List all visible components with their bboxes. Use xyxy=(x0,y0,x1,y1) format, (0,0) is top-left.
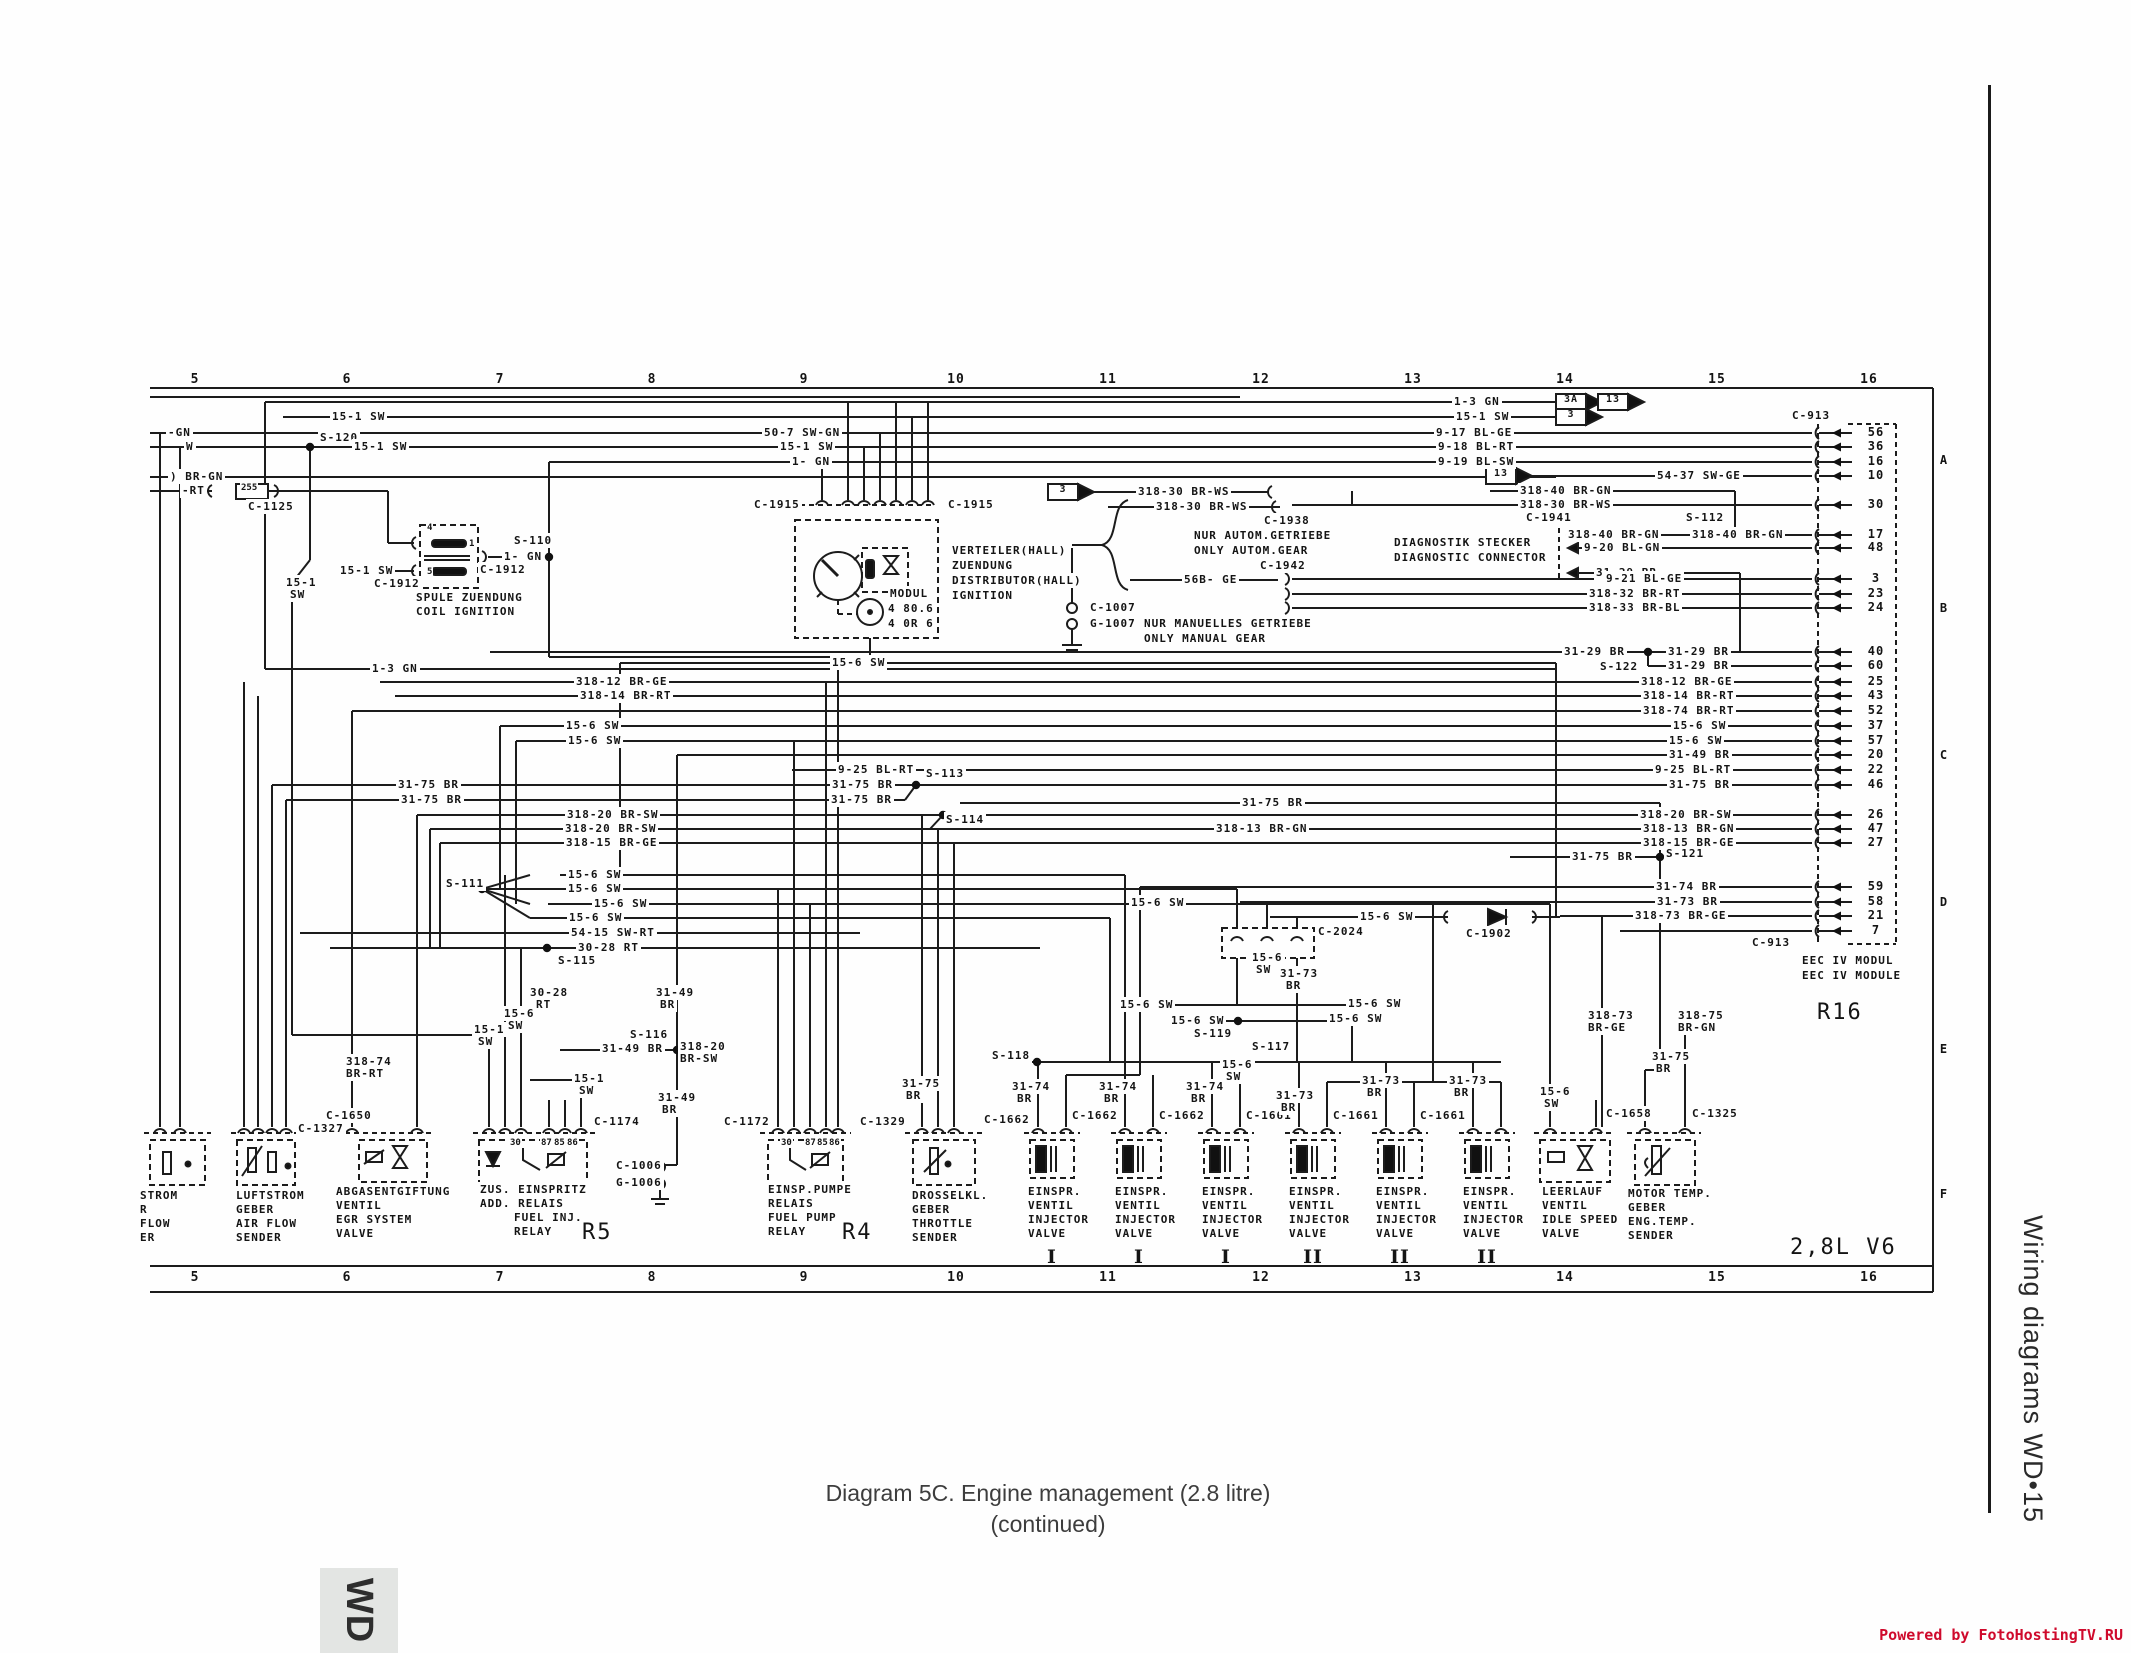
wire-label: VENTIL xyxy=(1026,1198,1076,1213)
wire-label: 31-75 BR xyxy=(829,792,894,807)
pin-number: 37 xyxy=(1866,718,1886,733)
page-divider-rule xyxy=(1988,85,1991,1513)
wire-label: C-1902 xyxy=(1464,926,1514,941)
wire-label: C-1125 xyxy=(246,499,296,514)
wire-label: FUEL PUMP xyxy=(766,1210,839,1225)
terminal-number: 1 xyxy=(468,539,475,549)
wire-label: EINSPR. xyxy=(1374,1184,1431,1199)
grid-number: 11 xyxy=(1097,1270,1119,1285)
wire-label: INJECTOR xyxy=(1113,1212,1178,1227)
wire-label: C-1172 xyxy=(722,1114,772,1129)
wire-label: BR xyxy=(1452,1085,1471,1100)
wire-label: C-2024 xyxy=(1316,924,1366,939)
wire-label: 15-6 SW xyxy=(1327,1011,1384,1026)
wire-label: EINSPR. xyxy=(1200,1184,1257,1199)
wire-label: C-1915 xyxy=(752,497,802,512)
arrow-ref: 3 xyxy=(1565,409,1576,420)
wire-label: VALVE xyxy=(334,1226,376,1241)
wire-label: -RT xyxy=(180,483,207,498)
wire-label: 4 0R 6 xyxy=(886,616,936,631)
wire-label: VALVE xyxy=(1113,1226,1155,1241)
wire-label: 15-6 SW xyxy=(1118,997,1175,1012)
pin-number: 22 xyxy=(1866,762,1886,777)
wire-label: LUFTSTROM xyxy=(234,1188,307,1203)
terminal-number: 4 xyxy=(426,523,433,533)
wire-label: 31-74 BR xyxy=(1654,879,1719,894)
pin-number: 43 xyxy=(1866,688,1886,703)
wire-label: ZUS. EINSPRITZ xyxy=(478,1182,589,1197)
wire-label: DIAGNOSTIK STECKER xyxy=(1392,535,1533,550)
grid-number: 10 xyxy=(945,372,967,387)
wire-label: 31-75 BR xyxy=(396,777,461,792)
wire-label: ZUENDUNG xyxy=(950,558,1015,573)
wire-label: SW xyxy=(1254,962,1273,977)
row-letter: C xyxy=(1938,748,1950,763)
terminal-number: 30 xyxy=(780,1138,793,1148)
wire-label: C-1942 xyxy=(1258,558,1308,573)
row-letter: F xyxy=(1938,1187,1950,1202)
wire-label: FUEL INJ. xyxy=(512,1210,585,1225)
wire-label: BR xyxy=(660,1102,679,1117)
wire-label: VENTIL xyxy=(334,1198,384,1213)
wire-label: 54-37 SW-GE xyxy=(1655,468,1743,483)
arrow-ref: 13 xyxy=(1492,468,1510,479)
wire-label: BR xyxy=(1189,1091,1208,1106)
wire-label: S-119 xyxy=(1192,1026,1234,1041)
wire-label: VALVE xyxy=(1540,1226,1582,1241)
wire-label: 15-1 SW xyxy=(1454,409,1511,424)
wire-label: ) BR-GN xyxy=(168,469,225,484)
component-id: R5 xyxy=(580,1220,615,1245)
wire-label: NUR MANUELLES GETRIEBE xyxy=(1142,616,1314,631)
wire-label: W xyxy=(184,439,196,454)
wire-label: INJECTOR xyxy=(1374,1212,1439,1227)
grid-number: 14 xyxy=(1554,1270,1576,1285)
wire-label: BR xyxy=(1015,1091,1034,1106)
wire-label: SENDER xyxy=(1626,1228,1676,1243)
wire-label: C-1661 xyxy=(1331,1108,1381,1123)
terminal-number: 86 xyxy=(566,1138,579,1148)
wire-label: SW xyxy=(577,1083,596,1098)
wire-label: BR-SW xyxy=(678,1051,720,1066)
wire-label: 15-6 SW xyxy=(566,881,623,896)
wire-label: SPULE ZUENDUNG xyxy=(414,590,525,605)
wire-label: 15-6 SW xyxy=(1129,895,1186,910)
component-id: 2,8L V6 xyxy=(1788,1235,1899,1260)
wire-label: 318-20 BR-SW xyxy=(563,821,658,836)
row-letter: A xyxy=(1938,453,1950,468)
wire-label: 31-49 BR xyxy=(600,1041,665,1056)
pin-number: 7 xyxy=(1870,923,1882,938)
wire-label: 318-74 BR-RT xyxy=(1641,703,1736,718)
cylinder-numeral: II xyxy=(1388,1246,1412,1268)
wire-label: C-1325 xyxy=(1690,1106,1740,1121)
wire-label: VALVE xyxy=(1461,1226,1503,1241)
wire-label: BR xyxy=(1284,978,1303,993)
wire-label: 318-40 BR-GN xyxy=(1690,527,1785,542)
wire-label: SENDER xyxy=(910,1230,960,1245)
cylinder-numeral: I xyxy=(1219,1246,1233,1268)
wire-label: DROSSELKL. xyxy=(910,1188,990,1203)
wire-label: COIL IGNITION xyxy=(414,604,517,619)
wire-label: S-118 xyxy=(990,1048,1032,1063)
wire-label: RELAIS xyxy=(766,1196,816,1211)
grid-number: 8 xyxy=(646,1270,659,1285)
wire-label: 9-20 BL-GN xyxy=(1582,540,1662,555)
wire-label: EINSPR. xyxy=(1287,1184,1344,1199)
pin-number: 25 xyxy=(1866,674,1886,689)
wire-label: 15-6 SW xyxy=(1667,733,1724,748)
wire-label: NUR AUTOM.GETRIEBE xyxy=(1192,528,1333,543)
wire-label: C-1658 xyxy=(1604,1106,1654,1121)
pin-number: 47 xyxy=(1866,821,1886,836)
wire-label: EGR SYSTEM xyxy=(334,1212,414,1227)
pin-number: 56 xyxy=(1866,425,1886,440)
wire-label: ONLY AUTOM.GEAR xyxy=(1192,543,1310,558)
wire-label: VALVE xyxy=(1374,1226,1416,1241)
wire-label: C-913 xyxy=(1750,935,1792,950)
grid-number: 16 xyxy=(1858,1270,1880,1285)
wire-label: LEERLAUF xyxy=(1540,1184,1605,1199)
wire-label: EINSPR. xyxy=(1026,1184,1083,1199)
terminal-number: 86 xyxy=(828,1138,841,1148)
pin-number: 27 xyxy=(1866,835,1886,850)
wire-label: SW xyxy=(288,587,307,602)
wire-label: GEBER xyxy=(1626,1200,1668,1215)
wire-label: 318-20 BR-SW xyxy=(565,807,660,822)
wire-label: 318-13 BR-GN xyxy=(1641,821,1736,836)
pin-number: 46 xyxy=(1866,777,1886,792)
wire-label: 31-75 BR xyxy=(830,777,895,792)
wire-label: S-115 xyxy=(556,953,598,968)
wire-label: 318-30 BR-WS xyxy=(1136,484,1231,499)
wire-label: C-1329 xyxy=(858,1114,908,1129)
grid-number: 6 xyxy=(341,372,354,387)
grid-number: 9 xyxy=(798,372,811,387)
wire-label: 31-29 BR xyxy=(1562,644,1627,659)
wire-label: DISTRIBUTOR(HALL) xyxy=(950,573,1084,588)
wire-label: 318-12 BR-GE xyxy=(574,674,669,689)
row-letter: B xyxy=(1938,601,1950,616)
wire-label: VALVE xyxy=(1200,1226,1242,1241)
grid-number: 14 xyxy=(1554,372,1576,387)
wire-label: C-1912 xyxy=(372,576,422,591)
wire-label: INJECTOR xyxy=(1026,1212,1091,1227)
wire-label: VENTIL xyxy=(1374,1198,1424,1213)
grid-number: 13 xyxy=(1402,372,1424,387)
wire-label: SW xyxy=(506,1018,525,1033)
wire-label: SW xyxy=(1542,1096,1561,1111)
wire-label: C-1938 xyxy=(1262,513,1312,528)
grid-number: 5 xyxy=(189,1270,202,1285)
wire-label: EINSPR. xyxy=(1461,1184,1518,1199)
wire-label: G-1007 xyxy=(1088,616,1138,631)
wire-label: G-1006 xyxy=(614,1175,664,1190)
wire-label: 4 80.6 xyxy=(886,601,936,616)
watermark: Powered by FotoHostingTV.RU xyxy=(1879,1626,2123,1644)
wire-label: BR xyxy=(904,1088,923,1103)
wire-label: R xyxy=(138,1202,150,1217)
wire-label: C-913 xyxy=(1790,408,1832,423)
grid-number: 7 xyxy=(494,1270,507,1285)
wire-label: 9-25 BL-RT xyxy=(836,762,916,777)
wire-label: MOTOR TEMP. xyxy=(1626,1186,1714,1201)
pin-number: 24 xyxy=(1866,600,1886,615)
wire-label: 9-19 BL-SW xyxy=(1436,454,1516,469)
arrow-ref: 3A xyxy=(1562,394,1580,405)
page-title: Diagram 5C. Engine management (2.8 litre… xyxy=(548,1478,1548,1540)
wire-label: 1-3 GN xyxy=(370,661,420,676)
wire-label: 54-15 SW-RT xyxy=(569,925,657,940)
wire-label: IDLE SPEED xyxy=(1540,1212,1620,1227)
wire-label: VALVE xyxy=(1287,1226,1329,1241)
pin-number: 52 xyxy=(1866,703,1886,718)
wire-label: C-1007 xyxy=(1088,600,1138,615)
wire-label: 15-1 SW xyxy=(778,439,835,454)
wire-label: 1- GN xyxy=(790,454,832,469)
wire-label: ENG.TEMP. xyxy=(1626,1214,1699,1229)
wire-label: C-1006 xyxy=(614,1158,664,1173)
pin-number: 58 xyxy=(1866,894,1886,909)
pin-number: 21 xyxy=(1866,908,1886,923)
wire-label: VENTIL xyxy=(1287,1198,1337,1213)
wire-label: 318-32 BR-RT xyxy=(1587,586,1682,601)
wire-label: VENTIL xyxy=(1113,1198,1163,1213)
cylinder-numeral: II xyxy=(1301,1246,1325,1268)
wire-label: EINSP.PUMPE xyxy=(766,1182,854,1197)
wire-label: INJECTOR xyxy=(1287,1212,1352,1227)
wire-label: EINSPR. xyxy=(1113,1184,1170,1199)
grid-number: 11 xyxy=(1097,372,1119,387)
wire-label: RT xyxy=(534,997,553,1012)
wire-label: EEC IV MODULE xyxy=(1800,968,1903,983)
arrow-ref: 13 xyxy=(1604,394,1622,405)
wire-label: S-117 xyxy=(1250,1039,1292,1054)
grid-number: 13 xyxy=(1402,1270,1424,1285)
wire-label: 31-49 BR xyxy=(1667,747,1732,762)
wire-label: 15-6 SW xyxy=(1671,718,1728,733)
cylinder-numeral: II xyxy=(1475,1246,1499,1268)
wire-label: C-1662 xyxy=(1157,1108,1207,1123)
wire-label: ER xyxy=(138,1230,157,1245)
pin-number: 48 xyxy=(1866,540,1886,555)
section-tab-label: WD xyxy=(338,1578,381,1643)
wire-label: -GN xyxy=(166,425,193,440)
terminal-number: 255 xyxy=(240,483,258,493)
wire-label: C-1662 xyxy=(1070,1108,1120,1123)
pin-number: 10 xyxy=(1866,468,1886,483)
wire-label: VALVE xyxy=(1026,1226,1068,1241)
wire-label: 318-20 BR-SW xyxy=(1638,807,1733,822)
grid-number: 10 xyxy=(945,1270,967,1285)
pin-number: 23 xyxy=(1866,586,1886,601)
wire-label: 56B- GE xyxy=(1182,572,1239,587)
wire-label: S-114 xyxy=(944,812,986,827)
wire-label: 9-25 BL-RT xyxy=(1653,762,1733,777)
grid-number: 16 xyxy=(1858,372,1880,387)
wire-label: GEBER xyxy=(234,1202,276,1217)
wire-label: STROM xyxy=(138,1188,180,1203)
wire-label: BR xyxy=(1279,1100,1298,1115)
pin-number: 59 xyxy=(1866,879,1886,894)
grid-number: 9 xyxy=(798,1270,811,1285)
pin-number: 40 xyxy=(1866,644,1886,659)
wire-label: 318-30 BR-WS xyxy=(1154,499,1249,514)
wire-label: 318-73 BR-GE xyxy=(1633,908,1728,923)
grid-number: 5 xyxy=(189,372,202,387)
wire-label: INJECTOR xyxy=(1200,1212,1265,1227)
terminal-number: 87 xyxy=(540,1138,553,1148)
wire-label: 318-33 BR-BL xyxy=(1587,600,1682,615)
wire-label: 9-17 BL-GE xyxy=(1434,425,1514,440)
grid-number: 15 xyxy=(1706,372,1728,387)
wire-label: 15-6 SW xyxy=(567,910,624,925)
wire-label: S-121 xyxy=(1664,846,1706,861)
row-letter: E xyxy=(1938,1042,1950,1057)
wire-label: SW xyxy=(1224,1069,1243,1084)
wire-label: MODUL xyxy=(888,586,930,601)
pin-number: 16 xyxy=(1866,454,1886,469)
wire-label: 15-1 SW xyxy=(330,409,387,424)
cylinder-numeral: I xyxy=(1045,1246,1059,1268)
wire-label: 31-75 BR xyxy=(1570,849,1635,864)
pin-number: 3 xyxy=(1870,571,1882,586)
row-letter: D xyxy=(1938,895,1950,910)
wire-label: 31-75 BR xyxy=(1667,777,1732,792)
cylinder-numeral: I xyxy=(1132,1246,1146,1268)
wire-label: BR-RT xyxy=(344,1066,386,1081)
wire-label: GEBER xyxy=(910,1202,952,1217)
pin-number: 36 xyxy=(1866,439,1886,454)
wire-label: 15-6 SW xyxy=(566,733,623,748)
wire-label: BR xyxy=(658,997,677,1012)
wire-label: 15-6 SW xyxy=(830,655,887,670)
terminal-number: 30 xyxy=(509,1138,522,1148)
grid-number: 7 xyxy=(494,372,507,387)
wire-label: SW xyxy=(476,1034,495,1049)
wire-label: VENTIL xyxy=(1461,1198,1511,1213)
arrow-ref: 3 xyxy=(1057,484,1068,495)
wire-label: 50-7 SW-GN xyxy=(762,425,842,440)
component-id: R16 xyxy=(1815,1000,1865,1025)
wire-label: 15-1 SW xyxy=(352,439,409,454)
wire-label: C-1941 xyxy=(1524,510,1574,525)
pin-number: 30 xyxy=(1866,497,1886,512)
wire-label: RELAY xyxy=(766,1224,808,1239)
diagram-caption-line2: (continued) xyxy=(548,1509,1548,1540)
wire-label: C-1662 xyxy=(982,1112,1032,1127)
wire-label: BR-GN xyxy=(1676,1020,1718,1035)
wire-label: 318-40 BR-GN xyxy=(1518,483,1613,498)
diagram-caption-line1: Diagram 5C. Engine management (2.8 litre… xyxy=(548,1478,1548,1509)
wire-label: S-111 xyxy=(444,876,486,891)
wire-label: 31-29 BR xyxy=(1666,644,1731,659)
grid-number: 12 xyxy=(1250,1270,1272,1285)
wire-label: S-122 xyxy=(1598,659,1640,674)
terminal-number: 85 xyxy=(816,1138,829,1148)
wire-label: C-1661 xyxy=(1418,1108,1468,1123)
wire-label: BR xyxy=(1654,1061,1673,1076)
wire-label: BR xyxy=(1365,1085,1384,1100)
wire-label: 318-13 BR-GN xyxy=(1214,821,1309,836)
wire-label: 15-6 SW xyxy=(1358,909,1415,924)
wire-label: RELAY xyxy=(512,1224,554,1239)
wire-label: C-1327 xyxy=(296,1121,346,1136)
wire-label: S-113 xyxy=(924,766,966,781)
wire-label: VENTIL xyxy=(1200,1198,1250,1213)
wire-label: ONLY MANUAL GEAR xyxy=(1142,631,1268,646)
wiring-diagram-page: 56789101112131415165678910111213141516AB… xyxy=(0,0,2131,1653)
wire-label: FLOW xyxy=(138,1216,173,1231)
wire-label: IGNITION xyxy=(950,588,1015,603)
grid-number: 6 xyxy=(341,1270,354,1285)
wire-label: S-110 xyxy=(512,533,554,548)
wire-label: 31-73 BR xyxy=(1655,894,1720,909)
wire-label: 318-14 BR-RT xyxy=(578,688,673,703)
section-tab: WD xyxy=(320,1568,398,1653)
grid-number: 8 xyxy=(646,372,659,387)
wire-label: S-116 xyxy=(628,1027,670,1042)
wire-label: 318-14 BR-RT xyxy=(1641,688,1736,703)
wire-label: C-1915 xyxy=(946,497,996,512)
wire-label: 15-6 SW xyxy=(1346,996,1403,1011)
terminal-number: 85 xyxy=(553,1138,566,1148)
wire-label: 9-21 BL-GE xyxy=(1604,571,1684,586)
diagram-labels: 56789101112131415165678910111213141516AB… xyxy=(0,0,2131,1653)
wire-label: 1-3 GN xyxy=(1452,394,1502,409)
grid-number: 12 xyxy=(1250,372,1272,387)
terminal-number: 87 xyxy=(804,1138,817,1148)
wire-label: 31-75 BR xyxy=(1240,795,1305,810)
component-id: R4 xyxy=(840,1220,875,1245)
wire-label: BR-GE xyxy=(1586,1020,1628,1035)
wire-label: 15-6 SW xyxy=(592,896,649,911)
wire-label: ABGASENTGIFTUNG xyxy=(334,1184,452,1199)
wire-label: S-112 xyxy=(1684,510,1726,525)
wire-label: C-1912 xyxy=(478,562,528,577)
wire-label: 15-6 SW xyxy=(566,867,623,882)
wire-label: 31-29 BR xyxy=(1666,658,1731,673)
wire-label: 318-15 BR-GE xyxy=(564,835,659,850)
wire-label: 31-75 BR xyxy=(399,792,464,807)
wire-label: AIR FLOW xyxy=(234,1216,299,1231)
pin-number: 26 xyxy=(1866,807,1886,822)
wire-label: INJECTOR xyxy=(1461,1212,1526,1227)
wire-label: 318-12 BR-GE xyxy=(1639,674,1734,689)
terminal-number: 5 xyxy=(426,567,433,577)
wire-label: C-1174 xyxy=(592,1114,642,1129)
wire-label: BR xyxy=(1102,1091,1121,1106)
wire-label: SENDER xyxy=(234,1230,284,1245)
pin-number: 20 xyxy=(1866,747,1886,762)
wire-label: 15-6 SW xyxy=(564,718,621,733)
grid-number: 15 xyxy=(1706,1270,1728,1285)
pin-number: 57 xyxy=(1866,733,1886,748)
wire-label: 9-18 BL-RT xyxy=(1436,439,1516,454)
wire-label: EEC IV MODUL xyxy=(1800,953,1895,968)
wire-label: ADD. RELAIS xyxy=(478,1196,566,1211)
wire-label: VERTEILER(HALL) xyxy=(950,543,1068,558)
wire-label: THROTTLE xyxy=(910,1216,975,1231)
wire-label: VENTIL xyxy=(1540,1198,1590,1213)
wire-label: DIAGNOSTIC CONNECTOR xyxy=(1392,550,1548,565)
chapter-side-caption: Wiring diagrams WD•15 xyxy=(2017,1215,2048,1523)
pin-number: 60 xyxy=(1866,658,1886,673)
